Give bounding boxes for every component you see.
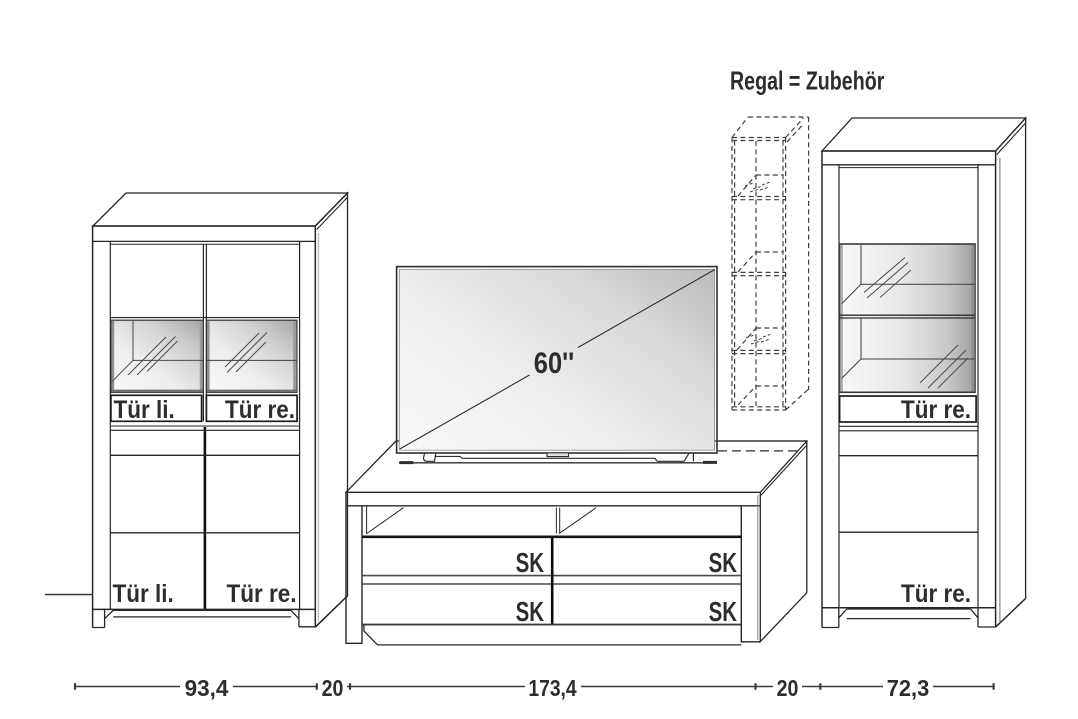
- svg-text:Tür re.: Tür re.: [901, 580, 971, 608]
- svg-text:60'': 60'': [534, 346, 574, 379]
- svg-text:20: 20: [777, 676, 799, 702]
- svg-text:Regal = Zubehör: Regal = Zubehör: [730, 66, 884, 95]
- svg-text:Tür li.: Tür li.: [113, 580, 174, 608]
- svg-text:Tür re.: Tür re.: [227, 580, 297, 608]
- svg-text:20: 20: [322, 676, 344, 702]
- svg-text:SK: SK: [709, 548, 738, 579]
- svg-text:SK: SK: [516, 597, 545, 628]
- svg-text:Tür re.: Tür re.: [901, 396, 971, 424]
- svg-text:Tür re.: Tür re.: [225, 396, 295, 424]
- svg-text:93,4: 93,4: [185, 675, 229, 701]
- svg-text:SK: SK: [709, 597, 738, 628]
- svg-text:173,4: 173,4: [528, 677, 576, 702]
- svg-text:72,3: 72,3: [887, 675, 930, 701]
- svg-text:Tür li.: Tür li.: [114, 396, 175, 424]
- svg-text:SK: SK: [516, 548, 545, 579]
